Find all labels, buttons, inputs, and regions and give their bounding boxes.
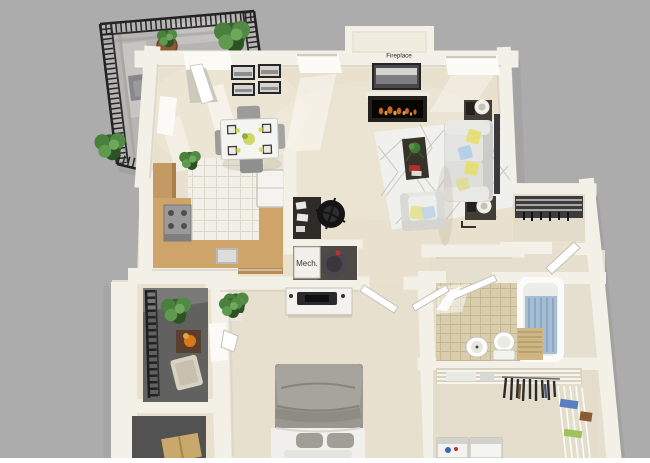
svg-text:Fireplace: Fireplace [386, 53, 412, 60]
svg-text:Mech.: Mech. [296, 259, 318, 268]
